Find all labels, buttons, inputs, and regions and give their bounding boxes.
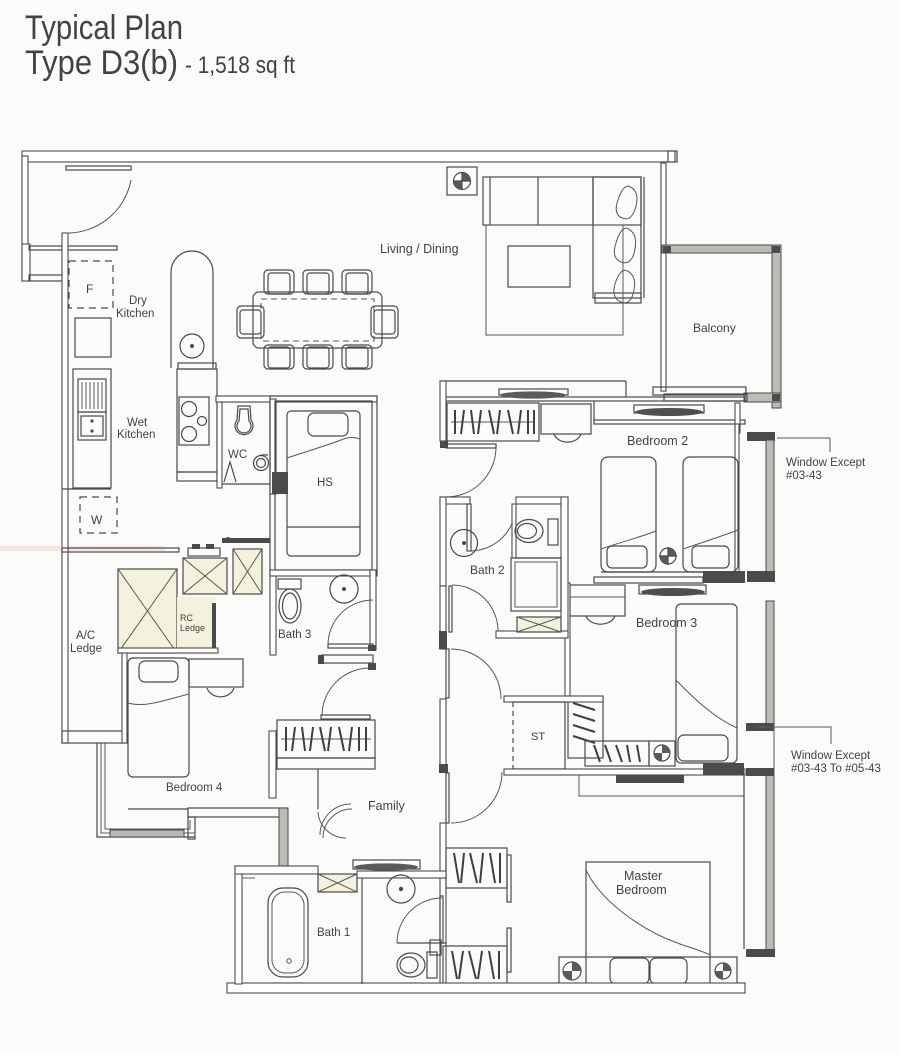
svg-text:Bedroom 2: Bedroom 2 [627,434,688,448]
svg-text:ST: ST [531,731,545,743]
svg-text:Kitchen: Kitchen [116,308,154,320]
svg-text:Balcony: Balcony [693,321,736,335]
svg-text:W: W [91,513,103,527]
svg-text:Bedroom 4: Bedroom 4 [166,782,223,794]
svg-text:Window Except: Window Except [786,457,866,469]
svg-text:Ledge: Ledge [180,623,205,633]
svg-text:Bath 2: Bath 2 [470,563,505,577]
svg-text:HS: HS [317,477,333,489]
svg-text:#03-43 To #05-43: #03-43 To #05-43 [791,763,881,775]
svg-text:Kitchen: Kitchen [117,429,155,441]
svg-text:Bedroom: Bedroom [616,883,667,897]
svg-text:Family: Family [368,799,406,813]
svg-text:Bath 1: Bath 1 [317,927,350,939]
svg-text:Ledge: Ledge [70,643,102,655]
svg-text:Living / Dining: Living / Dining [380,242,459,256]
svg-text:Bath 3: Bath 3 [278,629,311,641]
svg-text:RC: RC [180,613,193,623]
svg-text:- 1,518 sq ft: - 1,518 sq ft [185,52,295,79]
svg-text:Bedroom 3: Bedroom 3 [636,616,697,630]
svg-text:Typical Plan: Typical Plan [25,9,183,47]
svg-text:Window Except: Window Except [791,750,871,762]
svg-text:WC: WC [228,449,247,461]
svg-text:Dry: Dry [129,295,147,307]
svg-text:F: F [86,282,93,296]
svg-text:#03-43: #03-43 [786,470,822,482]
svg-text:Type D3(b): Type D3(b) [25,44,178,82]
svg-text:Master: Master [624,869,662,883]
svg-text:Wet: Wet [127,417,148,429]
svg-text:A/C: A/C [76,630,95,642]
